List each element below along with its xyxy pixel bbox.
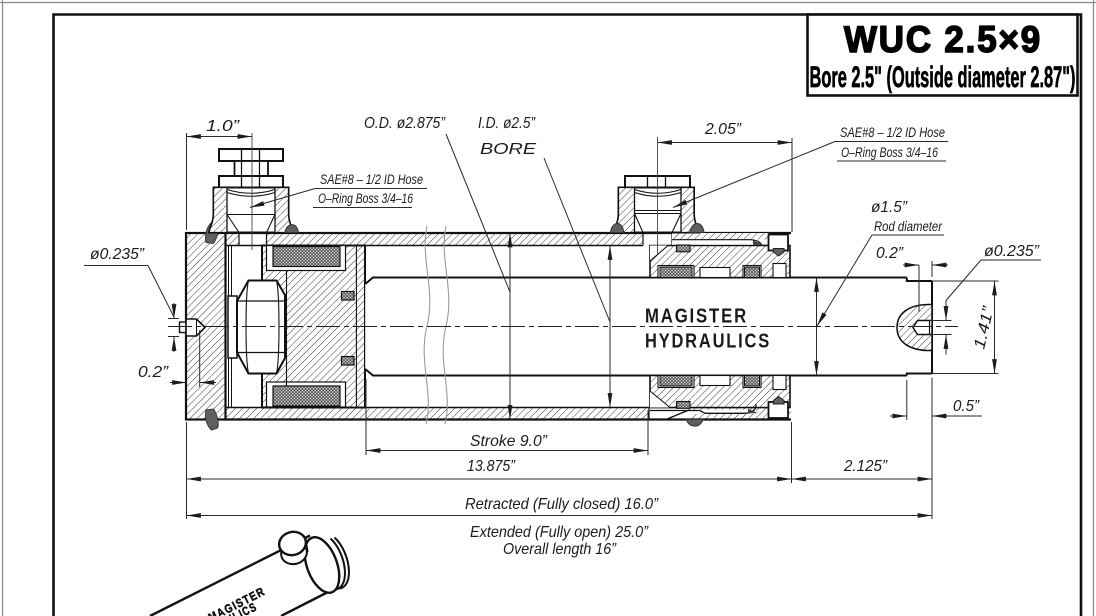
- svg-text:0.2”: 0.2”: [138, 364, 169, 381]
- svg-text:Overall length 16”: Overall length 16”: [503, 541, 617, 558]
- svg-text:MAGISTER: MAGISTER: [645, 306, 748, 328]
- svg-text:SAE#8 – 1/2 ID Hose: SAE#8 – 1/2 ID Hose: [840, 125, 945, 140]
- svg-text:O.D. ø2.875”: O.D. ø2.875”: [364, 115, 446, 132]
- svg-text:ø0.235”: ø0.235”: [984, 243, 1040, 260]
- svg-text:SAE#8 – 1/2 ID Hose: SAE#8 – 1/2 ID Hose: [320, 172, 423, 187]
- svg-text:BORE: BORE: [480, 141, 536, 158]
- svg-text:Retracted (Fully closed) 16.0”: Retracted (Fully closed) 16.0”: [465, 496, 659, 513]
- svg-text:ø1.5”: ø1.5”: [871, 199, 908, 216]
- svg-text:Extended (Fully open) 25.0”: Extended (Fully open) 25.0”: [470, 524, 649, 541]
- svg-text:Rod diameter: Rod diameter: [874, 219, 942, 234]
- svg-text:0.5”: 0.5”: [953, 398, 980, 415]
- svg-text:O–Ring Boss 3/4–16: O–Ring Boss 3/4–16: [318, 191, 413, 206]
- svg-text:ø0.235”: ø0.235”: [90, 246, 145, 263]
- svg-text:O–Ring Boss 3/4–16: O–Ring Boss 3/4–16: [841, 145, 938, 160]
- svg-text:WUC 2.5×9: WUC 2.5×9: [844, 19, 1042, 60]
- svg-text:0.2”: 0.2”: [876, 245, 904, 262]
- svg-text:Stroke 9.0”: Stroke 9.0”: [470, 433, 548, 450]
- svg-text:1.0”: 1.0”: [206, 118, 240, 135]
- svg-text:2.05”: 2.05”: [704, 121, 742, 138]
- svg-text:HYDRAULICS: HYDRAULICS: [645, 331, 771, 353]
- svg-text:2.125”: 2.125”: [843, 458, 888, 475]
- svg-text:Bore 2.5" (Outside diameter 2.: Bore 2.5" (Outside diameter 2.87"): [810, 61, 1076, 94]
- svg-text:13.875”: 13.875”: [467, 458, 516, 475]
- svg-text:I.D. ø2.5”: I.D. ø2.5”: [478, 115, 536, 132]
